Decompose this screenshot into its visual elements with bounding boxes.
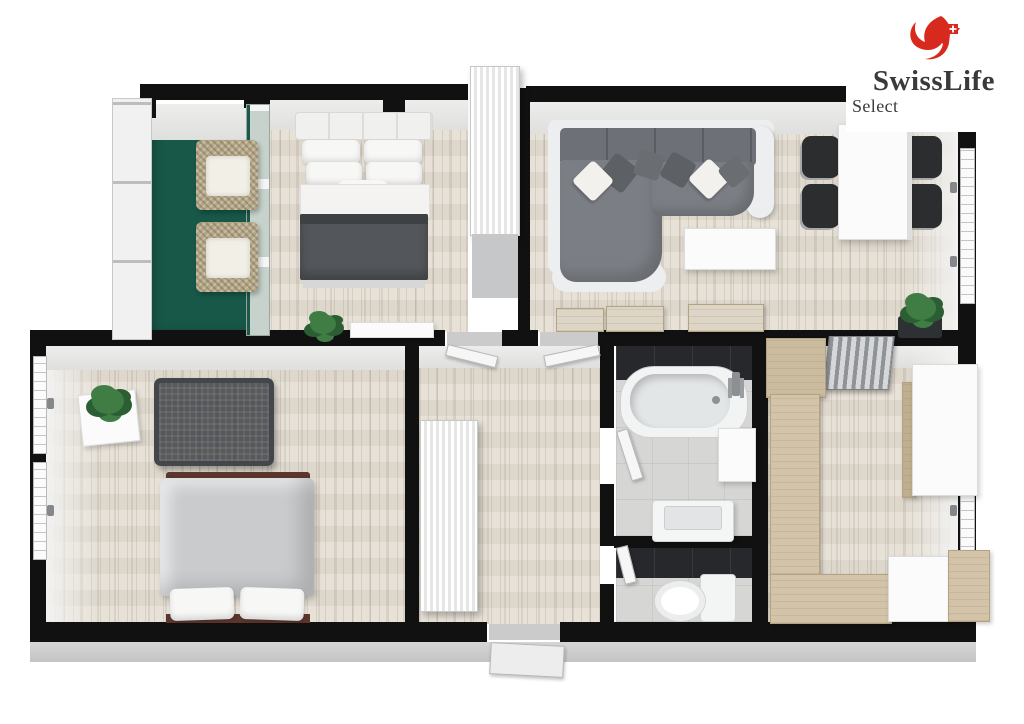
logo-sub-text: Select — [852, 96, 898, 117]
floorplan-render: SwissLife Select — [0, 0, 1024, 724]
logo-brand-text: SwissLife — [873, 66, 995, 96]
kitchen-counter-bottom — [770, 574, 892, 624]
fridge-cabinet — [912, 364, 978, 496]
logo-card: SwissLife Select — [846, 6, 1022, 132]
kitchen-corner-cube — [948, 550, 990, 622]
kitchen-corner-cabinet — [766, 338, 826, 398]
kitchen-counter-white — [888, 556, 954, 622]
swisslife-swan-icon — [908, 16, 960, 62]
radiator — [823, 336, 895, 390]
kitchen-cabinet-left — [770, 394, 820, 582]
